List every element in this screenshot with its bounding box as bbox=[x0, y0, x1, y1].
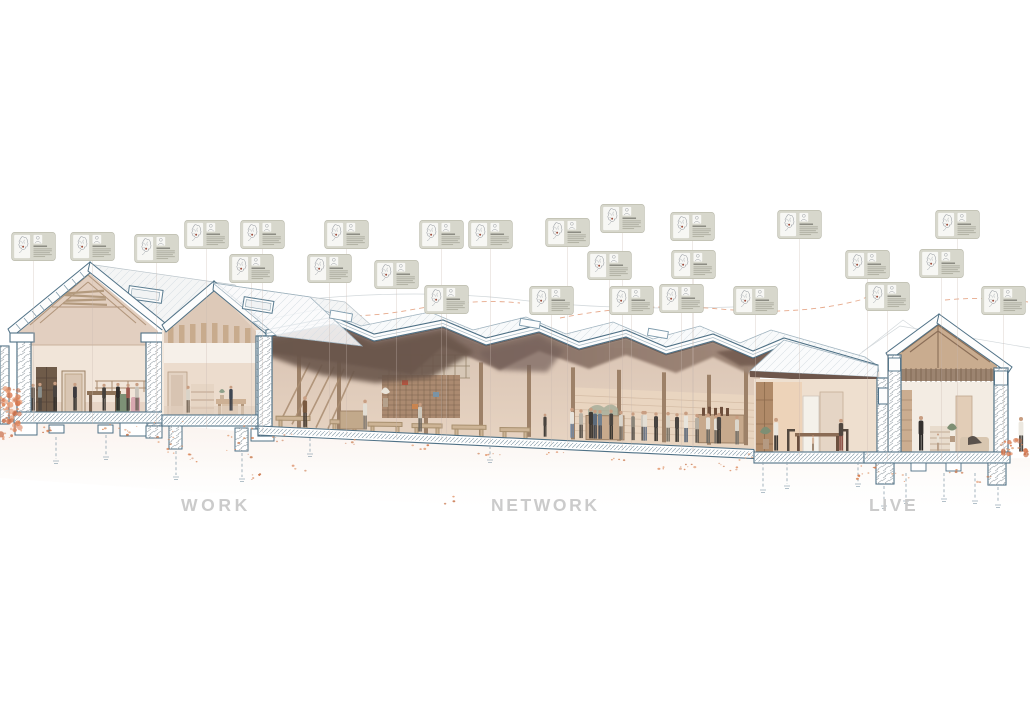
svg-text:LIVE: LIVE bbox=[869, 495, 918, 515]
svg-text:NETWORK: NETWORK bbox=[491, 495, 600, 515]
svg-text:WORK: WORK bbox=[181, 495, 251, 515]
